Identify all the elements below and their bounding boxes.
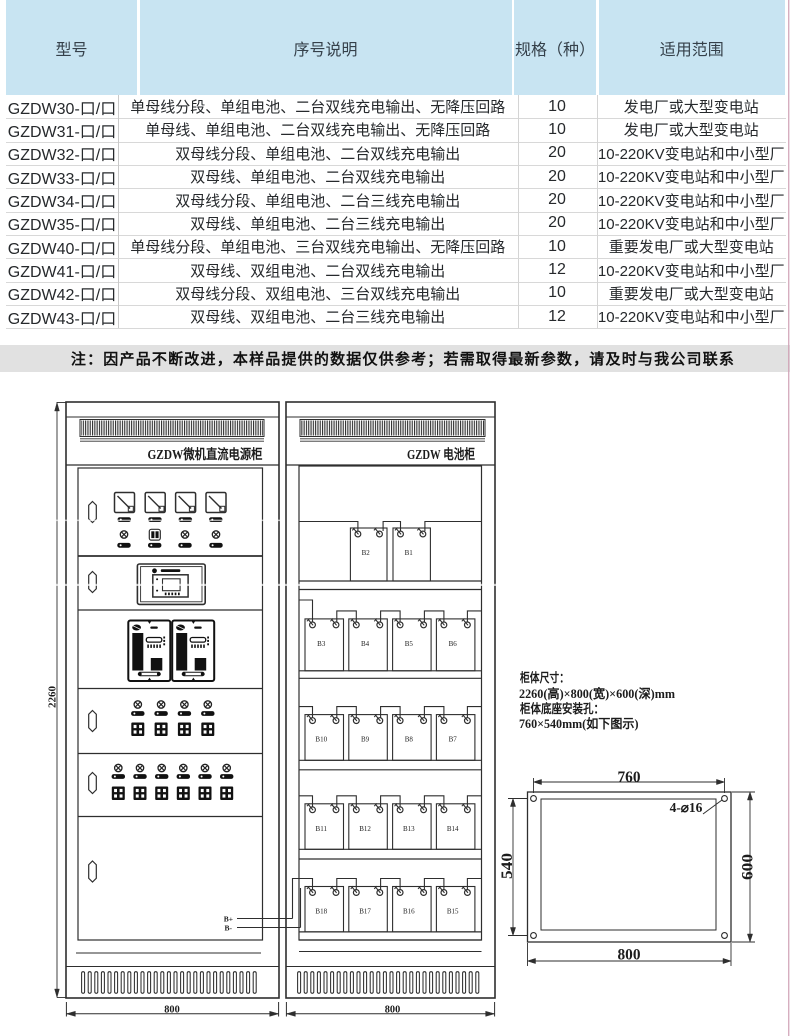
svg-text:760: 760 xyxy=(618,769,641,786)
svg-text:800: 800 xyxy=(618,947,641,964)
svg-text:B15: B15 xyxy=(447,908,459,916)
svg-text:B11: B11 xyxy=(316,825,328,833)
svg-text:B5: B5 xyxy=(405,640,414,648)
svg-text:GZDW 电池柜: GZDW 电池柜 xyxy=(407,446,475,462)
svg-text:600: 600 xyxy=(740,854,757,880)
svg-text:B13: B13 xyxy=(403,825,415,833)
svg-text:2260: 2260 xyxy=(48,686,59,708)
svg-text:B16: B16 xyxy=(403,908,415,916)
svg-text:B12: B12 xyxy=(359,825,371,833)
svg-text:柜体尺寸：: 柜体尺寸： xyxy=(519,670,569,685)
svg-text:800: 800 xyxy=(385,1005,401,1016)
svg-text:760×540mm(如下图示): 760×540mm(如下图示) xyxy=(519,716,639,731)
svg-text:2260(高)×800(宽)×600(深)mm: 2260(高)×800(宽)×600(深)mm xyxy=(519,686,676,701)
svg-text:540: 540 xyxy=(499,853,516,879)
svg-text:B10: B10 xyxy=(315,736,327,744)
svg-text:B8: B8 xyxy=(405,736,414,744)
svg-text:B17: B17 xyxy=(359,908,371,916)
svg-text:B9: B9 xyxy=(361,736,370,744)
svg-text:B2: B2 xyxy=(362,549,371,557)
svg-text:B+: B+ xyxy=(224,915,233,924)
svg-text:800: 800 xyxy=(164,1005,180,1016)
svg-text:GZDW微机直流电源柜: GZDW微机直流电源柜 xyxy=(148,446,263,462)
svg-text:4-⌀16: 4-⌀16 xyxy=(670,800,703,815)
svg-text:B18: B18 xyxy=(315,908,327,916)
svg-text:B1: B1 xyxy=(405,549,414,557)
svg-text:B14: B14 xyxy=(447,825,459,833)
svg-text:柜体底座安装孔：: 柜体底座安装孔： xyxy=(519,701,604,716)
svg-text:B7: B7 xyxy=(449,736,458,744)
svg-text:B3: B3 xyxy=(317,640,326,648)
svg-text:B-: B- xyxy=(225,924,233,933)
svg-text:B4: B4 xyxy=(361,640,370,648)
svg-text:B6: B6 xyxy=(449,640,458,648)
